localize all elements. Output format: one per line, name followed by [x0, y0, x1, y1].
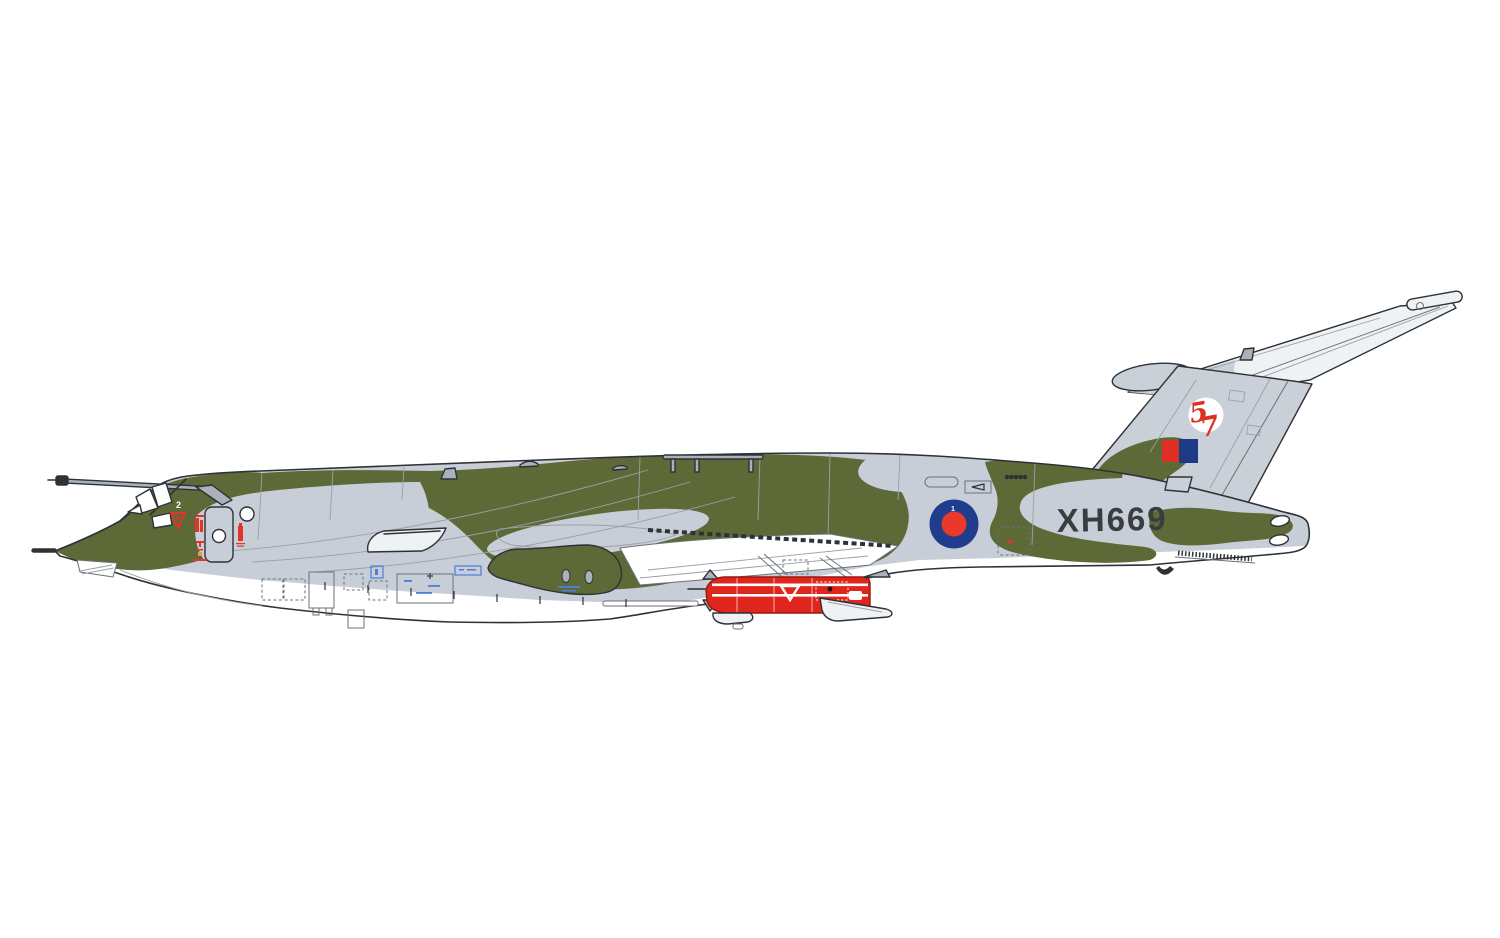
small-bump-antenna-icon [613, 466, 627, 470]
probe-nozzle [56, 476, 68, 485]
static-discharger-dots [1005, 475, 1028, 480]
roundel: 1 [930, 500, 979, 549]
missile-white-tab [849, 591, 862, 600]
tailplane-blade-antenna [1240, 348, 1254, 360]
pitot-tube [32, 549, 56, 552]
illustration-canvas: 57 5 7 [0, 0, 1500, 938]
fuselage-porthole [240, 507, 254, 521]
open-strake [603, 601, 698, 606]
squadron-flash-blue [1179, 439, 1198, 463]
tail-bumper [1156, 566, 1174, 575]
canopy-number: 2 [176, 500, 181, 510]
roundel-number: 1 [951, 506, 955, 513]
door-porthole [213, 530, 226, 543]
wing-slot-1 [562, 570, 570, 583]
missile-ventral-fin [713, 613, 753, 624]
missile-port [828, 587, 833, 592]
serial-number: XH669 [1056, 500, 1168, 539]
squadron-flash-red [1162, 440, 1179, 462]
wing-slot-2 [585, 571, 593, 584]
aircraft-profile-illustration: 57 5 7 [0, 0, 1500, 938]
squadron-flash [1162, 439, 1198, 463]
fin-root-fairing [1165, 477, 1192, 492]
roundel-center [942, 512, 967, 537]
